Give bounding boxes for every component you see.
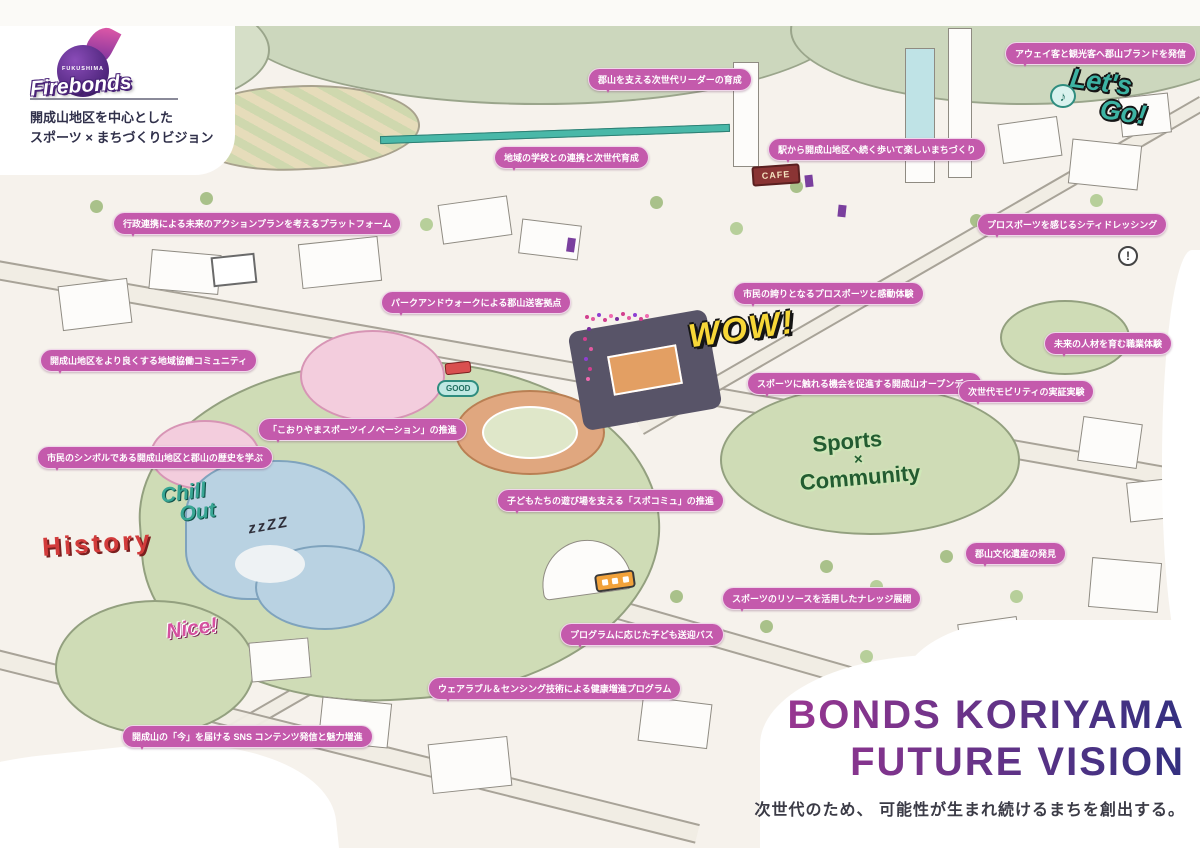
park-area bbox=[55, 600, 255, 735]
callout-school-partnership: 地域の学校との連携と次世代育成 bbox=[494, 146, 649, 169]
building bbox=[58, 278, 133, 331]
divider-line bbox=[30, 98, 178, 100]
callout-pro-sports-pride: 市民の誇りとなるプロスポーツと感動体験 bbox=[733, 282, 924, 305]
doodle-chill-out: Chill Out bbox=[159, 479, 216, 528]
callout-wearable-health: ウェアラブル＆センシング技術による健康増進プログラム bbox=[428, 677, 681, 700]
cafe-sign: CAFE bbox=[751, 163, 800, 186]
tagline-line1: 開成山地区を中心とした bbox=[30, 107, 250, 126]
banner-flag bbox=[837, 205, 846, 218]
callout-community-collab: 開成山地区をより良くする地域協働コミュニティ bbox=[40, 349, 257, 372]
callout-gov-platform: 行政連携による未来のアクションプランを考えるプラットフォーム bbox=[113, 212, 401, 235]
callout-park-and-walk: パークアンドウォークによる郡山送客拠点 bbox=[381, 291, 571, 314]
building bbox=[298, 236, 382, 289]
title-line1: BONDS KORIYAMA bbox=[690, 692, 1185, 739]
callout-cultural-heritage: 郡山文化遺産の発見 bbox=[965, 542, 1066, 565]
building bbox=[998, 116, 1063, 164]
building bbox=[428, 736, 513, 794]
callout-kids-shuttle: プログラムに応じた子ども送迎バス bbox=[560, 623, 724, 646]
brand-block: FUKUSHIMA Firebonds 開成山地区を中心とした スポーツ × ま… bbox=[0, 0, 235, 175]
building bbox=[438, 195, 513, 244]
torn-edge bbox=[1162, 250, 1200, 680]
building bbox=[1068, 138, 1142, 190]
title-line2: FUTURE VISION bbox=[690, 739, 1185, 786]
callout-open-day: スポーツに触れる機会を促進する開成山オープンデー bbox=[747, 372, 982, 395]
doodle-chill-line2: Out bbox=[178, 499, 217, 525]
exclamation-bubble: ! bbox=[1118, 246, 1138, 266]
presentation-screen bbox=[211, 253, 258, 287]
poster-canvas: CAFE Let's Go! WOW! Sports × Community C… bbox=[0, 0, 1200, 848]
doodle-lets-go-line2: Go! bbox=[1098, 96, 1148, 129]
callout-next-gen-leaders: 郡山を支える次世代リーダーの育成 bbox=[588, 68, 752, 91]
crowd-dots bbox=[585, 315, 589, 319]
callout-sports-innovation: 「こおりやまスポーツイノベーション」の推進 bbox=[258, 418, 467, 441]
callout-away-fans-brand: アウェイ客と観光客へ郡山ブランドを発信 bbox=[1005, 42, 1196, 65]
doodle-history: History bbox=[41, 526, 153, 560]
tree-cluster bbox=[820, 560, 833, 573]
building bbox=[1077, 416, 1143, 469]
building bbox=[905, 48, 935, 183]
good-speech-bubble: GOOD bbox=[437, 380, 479, 397]
rail-line bbox=[380, 124, 730, 144]
callout-walkable-town: 駅から開成山地区へ続く歩いて楽しいまちづくり bbox=[768, 138, 986, 161]
track-infield bbox=[482, 406, 578, 459]
callout-knowledge-sharing: スポーツのリソースを活用したナレッジ展開 bbox=[722, 587, 921, 610]
callout-spocommu: 子どもたちの遊び場を支える「スポコミュ」の推進 bbox=[497, 489, 724, 512]
banner-flag bbox=[804, 175, 813, 188]
callout-career-experience: 未来の人材を育む職業体験 bbox=[1044, 332, 1172, 355]
doodle-sports-community: Sports × Community bbox=[796, 425, 922, 494]
doodle-lets-go: Let's Go! bbox=[1065, 65, 1152, 130]
callout-sns-content: 開成山の「今」を届ける SNS コンテンツ発信と魅力増進 bbox=[122, 725, 373, 748]
building bbox=[1088, 557, 1162, 613]
logo-league-text: FUKUSHIMA bbox=[57, 66, 109, 72]
building bbox=[248, 637, 311, 682]
title-subtitle: 次世代のため、 可能性が生まれ続けるまちを創出する。 bbox=[690, 796, 1185, 820]
cherry-blossom-area bbox=[300, 330, 445, 422]
logo-team-name: Firebonds bbox=[29, 66, 190, 101]
building bbox=[148, 249, 221, 295]
title-block: BONDS KORIYAMA FUTURE VISION 次世代のため、 可能性… bbox=[690, 692, 1185, 820]
callout-city-dressing: プロスポーツを感じるシティドレッシング bbox=[977, 213, 1167, 236]
tagline-line2: スポーツ × まちづくりビジョン bbox=[30, 127, 250, 146]
music-note-bubble: ♪ bbox=[1050, 84, 1076, 108]
callout-history-learning: 市民のシンボルである開成山地区と郡山の歴史を学ぶ bbox=[37, 446, 273, 469]
pond-highlight bbox=[235, 545, 305, 583]
callout-mobility-test: 次世代モビリティの実証実験 bbox=[958, 380, 1094, 403]
tree-cluster bbox=[90, 200, 103, 213]
